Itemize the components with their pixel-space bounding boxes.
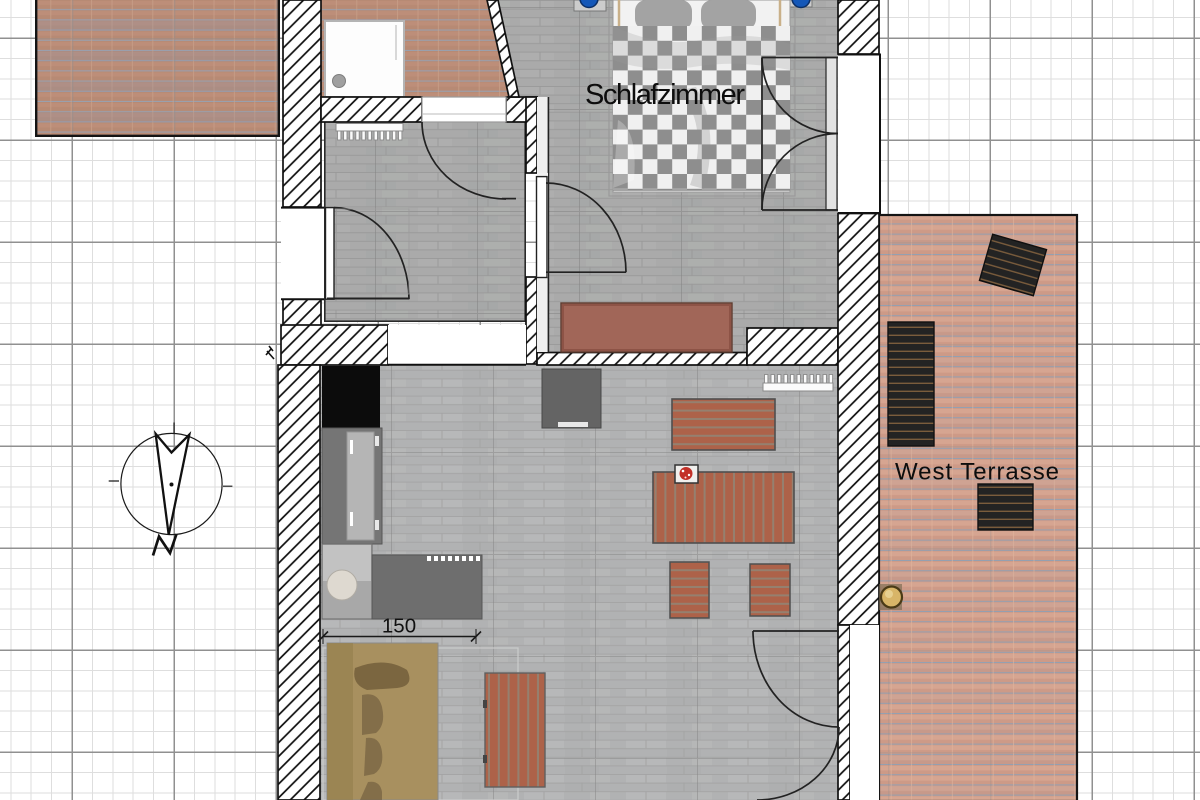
svg-text:Schlafzimmer: Schlafzimmer	[585, 79, 745, 111]
svg-text:150: 150	[382, 615, 416, 638]
svg-text:West Terrasse: West Terrasse	[895, 459, 1059, 486]
